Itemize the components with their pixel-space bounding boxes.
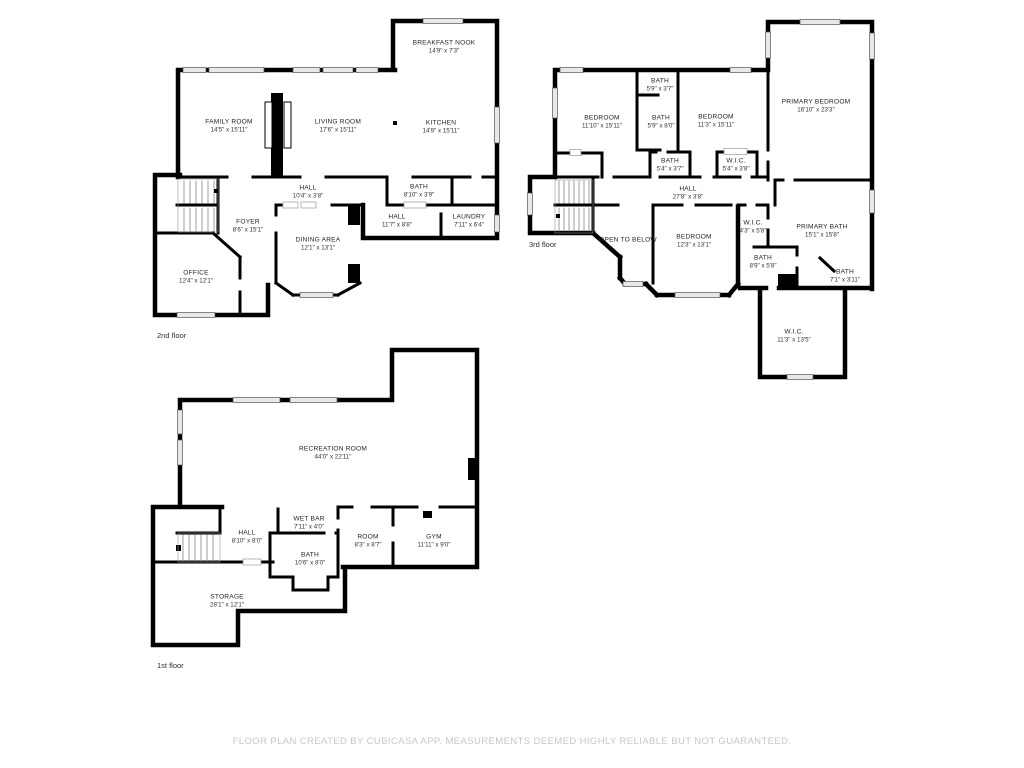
floor-plan-2nd-floor (155, 19, 500, 318)
exterior-walls (153, 350, 477, 645)
floor-plan-3rd-floor (528, 20, 875, 380)
footer-disclaimer: FLOOR PLAN CREATED BY CUBICASA APP. MEAS… (0, 736, 1024, 747)
exterior-walls (155, 21, 497, 315)
floor-caption-3rd-floor: 3rd floor (529, 240, 557, 249)
floor-caption-2nd-floor: 2nd floor (157, 331, 186, 340)
wall-fills (176, 458, 477, 551)
floor-caption-1st-floor: 1st floor (157, 661, 184, 670)
window-icon (178, 398, 338, 466)
interior-walls (153, 507, 477, 590)
floor-plan-canvas (0, 0, 1024, 768)
stairs-icon (178, 533, 220, 562)
floor-plan-page: BREAKFAST NOOK14'9" x 7'3" FAMILY ROOM14… (0, 0, 1024, 768)
window-icon (528, 20, 875, 380)
gym-equipment-icon (423, 511, 432, 518)
door-icon (243, 559, 261, 565)
exterior-walls (530, 22, 872, 377)
interior-walls (555, 70, 870, 288)
floor-plan-1st-floor (153, 350, 477, 645)
wall-fills (778, 274, 797, 287)
window-icon (177, 19, 500, 318)
